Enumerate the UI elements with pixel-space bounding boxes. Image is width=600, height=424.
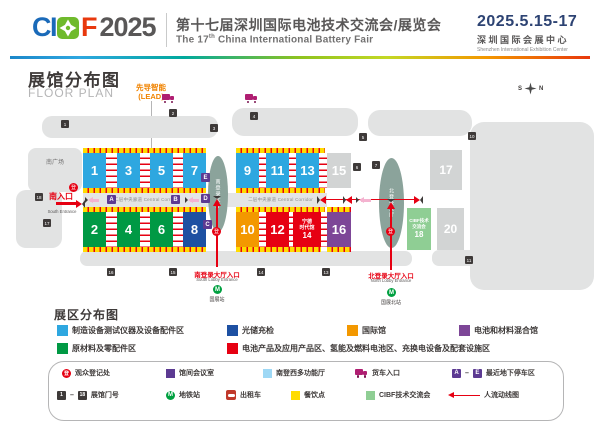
zone-swatch-darkblue: [227, 325, 238, 336]
gate-marker-18: 18: [35, 193, 43, 201]
parking-connector-c: C: [203, 220, 212, 229]
zone-item-mixed: 电池和材料混合馆: [459, 325, 538, 336]
metro-station-north-label: 国展北站: [369, 299, 413, 306]
hall-gap: [289, 212, 293, 247]
legend-label: 馆间会议室: [179, 368, 214, 378]
parking-connector-b: B: [171, 195, 180, 204]
gate-marker-7: 7: [372, 161, 380, 169]
south-lobby-flow-arrowhead: [213, 196, 221, 206]
flow-arrow-pink: [361, 199, 371, 202]
hall-gap: [173, 153, 183, 188]
gate-marker-17: 17: [43, 219, 51, 227]
truck-icon: [245, 94, 258, 103]
gate-marker-4: 4: [250, 112, 258, 120]
south-lobby-entrance-label-en: South Lobby Entrance: [183, 277, 251, 282]
legend-item-flow-line: 人流动线图: [448, 390, 519, 400]
hall-13: 13: [296, 153, 319, 188]
hall-10: 10: [236, 212, 259, 247]
legend-label: 出租车: [240, 390, 261, 400]
legend-label: 南登西多功能厅: [276, 368, 325, 378]
zone-legend-title: 展区分布图: [54, 306, 119, 323]
zone-item-storage-charging: 光储充检: [227, 325, 274, 336]
zone-label: 电池产品及应用产品区、氢能及燃料电池区、充换电设备及配套设施区: [242, 343, 490, 354]
legend-item-dining: 餐饮点: [291, 390, 325, 400]
range-dash: –: [70, 392, 74, 399]
zone-label: 原材料及零配件区: [72, 343, 136, 354]
flow-arrow-icon: [448, 392, 480, 399]
corridor-label-east: 二层中央廊道 Central Corridor: [238, 197, 323, 203]
hall-12: 12: [266, 212, 289, 247]
zone-label: 国际馆: [362, 325, 386, 336]
south-entrance-arrow: [56, 202, 76, 205]
registration-icon: 登: [62, 369, 71, 378]
hall-4: 4: [117, 212, 140, 247]
parking-connector-a: A: [107, 195, 116, 204]
gate-18-icon: 18: [78, 391, 87, 400]
dining-strip: [83, 247, 206, 252]
legend-item-meeting-room: 馆间会议室: [166, 368, 214, 378]
venue-cn: 深圳国际会展中心: [477, 33, 577, 46]
gate-marker-11: 11: [465, 256, 473, 264]
zone-swatch-lightblue: [57, 325, 68, 336]
range-dash: –: [465, 370, 469, 377]
hall-8: 8: [183, 212, 206, 247]
hall-gap: [140, 153, 150, 188]
legend-label: 地铁站: [179, 390, 200, 400]
hall-gap: [259, 153, 266, 188]
multi-hall-swatch: [263, 369, 272, 378]
fair-title-en-b: China International Battery Fair: [215, 34, 373, 45]
header-divider: [166, 13, 167, 47]
registration-point-north-lobby: 登: [386, 227, 395, 236]
legend-label: 餐饮点: [304, 390, 325, 400]
hall-9: 9: [236, 153, 259, 188]
south-entrance-label-cn: 南入口: [44, 191, 78, 202]
header-gradient-bar: [10, 56, 590, 59]
gate-1-icon: 1: [57, 391, 66, 400]
parking-connector-d: D: [201, 194, 210, 203]
zone-swatch-green: [57, 343, 68, 354]
zone-label: 电池和材料混合馆: [474, 325, 538, 336]
parking-connector-e: E: [201, 173, 210, 182]
zone-swatch-purple: [459, 325, 470, 336]
metro-icon: M: [166, 391, 175, 400]
hall-gap: [106, 153, 117, 188]
legend-label: 展馆门号: [91, 390, 119, 400]
dining-strip: [327, 247, 351, 252]
south-entrance-label-en: South Entrance: [40, 209, 84, 214]
hall-11: 11: [266, 153, 289, 188]
gate-marker-5: 5: [359, 133, 367, 141]
hall-14-catl: 宁德 时代馆 14: [293, 212, 321, 247]
parking-a-icon: A: [452, 369, 461, 378]
hall-3: 3: [117, 153, 140, 188]
hall-gap: [140, 212, 150, 247]
metro-icon-north: M: [387, 288, 396, 297]
zone-swatch-orange: [347, 325, 358, 336]
zone-item-international: 国际馆: [347, 325, 386, 336]
hall-20: 20: [437, 208, 464, 250]
cibf-forum-swatch: [366, 391, 375, 400]
gate-marker-6: 6: [353, 163, 361, 171]
compass-south-label: S: [518, 86, 522, 92]
hall-18-cibf-forum: CIBF技术 交流会 18: [407, 208, 431, 250]
legend-label: 观众登记处: [75, 368, 110, 378]
map-title-en: FLOOR PLAN: [28, 86, 114, 100]
gate-marker-15: 15: [169, 268, 177, 276]
hall-16: 16: [327, 212, 351, 247]
zone-item-raw-materials: 原材料及零配件区: [57, 343, 136, 354]
truck-icon: [355, 369, 368, 378]
fair-title-cn: 第十七届深圳国际电池技术交流会/展览会: [176, 15, 441, 35]
legend-item-registration: 登 观众登记处: [62, 368, 110, 378]
hall-gap: [289, 153, 296, 188]
legend-item-parking: A – E 最近地下停车区: [452, 368, 535, 378]
hall-15: 15: [327, 153, 351, 188]
south-plaza-label: 南广场: [30, 157, 80, 166]
legend-item-multi-hall: 南登西多功能厅: [263, 368, 325, 378]
south-entrance-arrowhead: [76, 200, 85, 208]
cibf-logo: CI F 2025: [32, 12, 156, 43]
gate-marker-2: 2: [169, 109, 177, 117]
legend-item-cibf-forum: CIBF技术交流会: [366, 390, 430, 400]
hall-14-number: 14: [303, 231, 312, 241]
legend-label: CIBF技术交流会: [379, 390, 430, 400]
legend-item-truck-entrance: 货车入口: [355, 368, 400, 378]
gate-marker-16: 16: [107, 268, 115, 276]
hall-gap: [259, 212, 266, 247]
flow-arrowhead-west: [343, 196, 352, 204]
registration-point-south-lobby: 登: [212, 227, 221, 236]
north-lobby-entrance-label-en: North Lobby Entrance: [357, 278, 425, 283]
fair-date: 2025.5.15-17: [477, 13, 577, 31]
meeting-room-swatch: [166, 369, 175, 378]
map-road-blob: [368, 110, 472, 136]
legend-label: 最近地下停车区: [486, 368, 535, 378]
hall-gap: [321, 212, 327, 247]
hall-6: 6: [150, 212, 173, 247]
compass-north-label: N: [539, 86, 543, 92]
lead-label-cn: 先导智能: [127, 83, 175, 92]
gate-marker-13: 13: [322, 268, 330, 276]
hall-5: 5: [150, 153, 173, 188]
gate-marker-14: 14: [257, 268, 265, 276]
compass-rose: S N: [518, 82, 543, 95]
hall-2: 2: [83, 212, 106, 247]
cibf-pinwheel-icon: [57, 17, 79, 39]
gate-marker-10: 10: [468, 132, 476, 140]
hall-gap: [173, 212, 183, 247]
gate-marker-3: 3: [210, 124, 218, 132]
legend-label: 人流动线图: [484, 390, 519, 400]
hall-7: 7: [183, 153, 206, 188]
flow-arrowhead-west: [317, 196, 326, 204]
legend-label: 货车入口: [372, 368, 400, 378]
fair-title-en-a: The 17: [176, 34, 209, 45]
zone-label: 制造设备测试仪器及设备配件区: [72, 325, 184, 336]
zone-item-equipment: 制造设备测试仪器及设备配件区: [57, 325, 184, 336]
hall-gap: [106, 212, 117, 247]
flow-arrow-pink: [90, 199, 99, 202]
logo-f-text: F: [81, 12, 97, 43]
logo-year-text: 2025: [100, 12, 156, 43]
north-lobby-flow-arrow: [390, 206, 392, 270]
zone-label: 光储充检: [242, 325, 274, 336]
dining-swatch: [291, 391, 300, 400]
flow-arrowhead-east: [414, 196, 423, 204]
logo-ci-text: CI: [32, 12, 56, 43]
hall-18-number: 18: [415, 230, 424, 240]
truck-icon: [162, 94, 175, 103]
parking-e-icon: E: [473, 369, 482, 378]
zone-swatch-red: [227, 343, 238, 354]
compass-star-icon: [524, 82, 537, 95]
date-venue-block: 2025.5.15-17 深圳国际会展中心 Shenzhen Internati…: [477, 13, 577, 53]
venue-en: Shenzhen International Exhibition Center: [477, 47, 577, 53]
gate-marker-1: 1: [61, 120, 69, 128]
metro-station-south-label: 国展站: [195, 296, 239, 303]
map-road-blob: [80, 251, 412, 266]
map-road-blob: [432, 250, 592, 266]
hall-1: 1: [83, 153, 106, 188]
flow-arrow-pink: [190, 199, 199, 202]
metro-icon-south: M: [213, 285, 222, 294]
legend-item-gate-numbers: 1 – 18 展馆门号: [57, 390, 119, 400]
legend-item-metro: M 地铁站: [166, 390, 200, 400]
taxi-icon: [226, 390, 236, 400]
floor-plan-page: CI F 2025 第十七届深圳国际电池技术交流会/展览会 The 17th C…: [0, 0, 600, 424]
legend-item-taxi: 出租车: [226, 390, 261, 400]
fair-title-en: The 17th China International Battery Fai…: [176, 34, 373, 45]
hall-gap: [319, 153, 327, 188]
zone-item-battery-products: 电池产品及应用产品区、氢能及燃料电池区、充换电设备及配套设施区: [227, 343, 490, 354]
hall-17: 17: [430, 150, 462, 190]
north-lobby-flow-arrowhead: [387, 199, 395, 209]
dining-strip: [236, 247, 321, 252]
